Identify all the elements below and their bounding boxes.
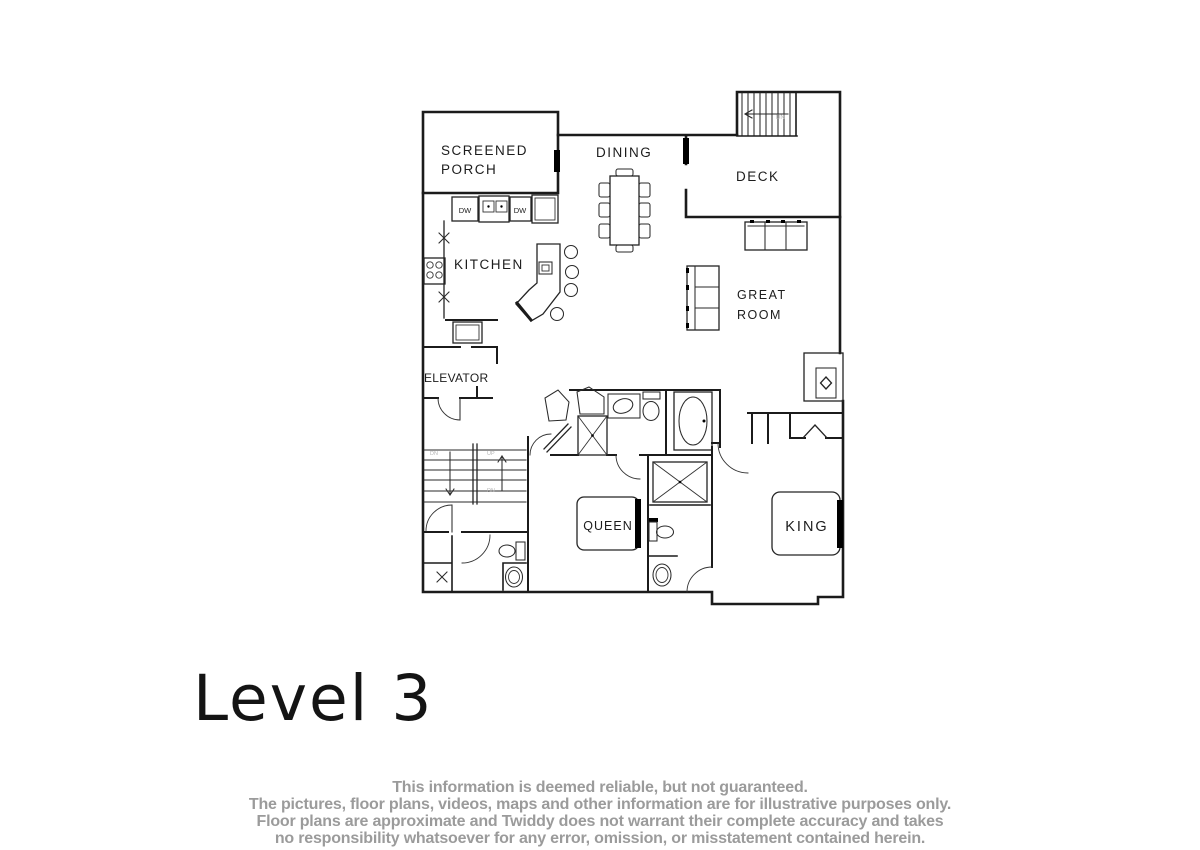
stairs-down-arrow bbox=[446, 452, 454, 495]
door-jamb bbox=[554, 150, 560, 172]
headboard bbox=[837, 500, 843, 548]
screened-porch-label-2: PORCH bbox=[441, 162, 497, 177]
toilet bbox=[653, 564, 671, 586]
angled-door bbox=[544, 424, 571, 452]
bar-stool bbox=[565, 284, 578, 297]
dw-label-left: DW bbox=[459, 206, 472, 215]
door-jamb bbox=[683, 138, 689, 164]
closet-door-mark bbox=[437, 572, 447, 582]
door-swing bbox=[687, 567, 712, 592]
deck-label: DECK bbox=[736, 169, 780, 184]
deck-stairs: DN bbox=[737, 92, 797, 136]
bath-sink bbox=[608, 394, 640, 418]
door-leaf bbox=[545, 390, 569, 421]
kitchen-label: KITCHEN bbox=[454, 257, 524, 272]
range bbox=[424, 258, 445, 284]
bathtub bbox=[674, 392, 712, 450]
queen-label: QUEEN bbox=[583, 519, 632, 533]
screened-porch: SCREENED PORCH bbox=[441, 143, 528, 177]
bar-stool bbox=[551, 308, 564, 321]
door-leaf bbox=[577, 387, 604, 414]
kitchen-counter: DW DW bbox=[452, 195, 558, 223]
great-room-label: GREAT bbox=[737, 288, 787, 302]
hall-bath bbox=[648, 447, 712, 592]
disclaimer-line: The pictures, floor plans, videos, maps … bbox=[0, 796, 1200, 813]
deck-stairs-dn-label: DN bbox=[776, 115, 785, 121]
interior-stairs: DN UP DN bbox=[424, 444, 526, 504]
entry-hall-bath bbox=[423, 505, 528, 592]
elevator-area: ELEVATOR bbox=[423, 320, 497, 420]
disclaimer-line: This information is deemed reliable, but… bbox=[0, 779, 1200, 796]
stairs-dn-label-2: DN bbox=[487, 488, 495, 494]
stairs-up-label: UP bbox=[487, 451, 495, 457]
dining-area: DINING bbox=[596, 145, 652, 252]
king-bedroom: KING bbox=[712, 413, 843, 555]
disclaimer: This information is deemed reliable, but… bbox=[0, 779, 1200, 847]
great-room: GREAT ROOM bbox=[686, 220, 843, 401]
vanity-sink bbox=[499, 542, 525, 560]
disclaimer-line: no responsibility whatsoever for any err… bbox=[0, 830, 1200, 847]
toilet bbox=[643, 392, 660, 421]
dw-label-right: DW bbox=[514, 206, 527, 215]
toilet bbox=[503, 563, 526, 590]
fireplace bbox=[804, 353, 843, 401]
master-bath bbox=[528, 387, 720, 592]
level-title: Level 3 bbox=[193, 662, 433, 735]
shower bbox=[653, 462, 707, 502]
king-label: KING bbox=[785, 519, 828, 535]
kitchen-island bbox=[516, 244, 579, 321]
wall-sink bbox=[649, 518, 674, 541]
stairs-up-arrow bbox=[498, 456, 506, 491]
deck: DN DECK bbox=[736, 92, 797, 184]
great-room-label-2: ROOM bbox=[737, 308, 782, 322]
deck-bench bbox=[745, 220, 807, 250]
door-swing bbox=[616, 455, 640, 479]
headboard bbox=[635, 499, 641, 548]
bar-stool bbox=[566, 266, 579, 279]
door-swing bbox=[462, 535, 490, 563]
disclaimer-line: Floor plans are approximate and Twiddy d… bbox=[0, 813, 1200, 830]
bar-stool bbox=[565, 246, 578, 259]
screened-porch-label: SCREENED bbox=[441, 143, 528, 158]
dining-label: DINING bbox=[596, 145, 652, 160]
door-swing bbox=[718, 443, 748, 473]
door-swing bbox=[438, 398, 460, 420]
floor-plan-page: SCREENED PORCH DN DECK DINING bbox=[0, 0, 1200, 850]
stairs-dn-label: DN bbox=[430, 451, 438, 457]
kitchen: DW DW KITCHEN bbox=[424, 195, 579, 321]
sofa bbox=[686, 266, 719, 330]
door-swing bbox=[426, 505, 452, 531]
queen-bedroom: QUEEN bbox=[577, 497, 641, 550]
floor-plan-drawing: SCREENED PORCH DN DECK DINING bbox=[0, 0, 1200, 850]
corner-counter bbox=[532, 195, 558, 223]
stair-railing bbox=[473, 444, 477, 504]
shower bbox=[578, 416, 607, 455]
elevator-label: ELEVATOR bbox=[424, 371, 488, 385]
dining-table bbox=[599, 169, 650, 252]
closet-door bbox=[803, 425, 827, 438]
